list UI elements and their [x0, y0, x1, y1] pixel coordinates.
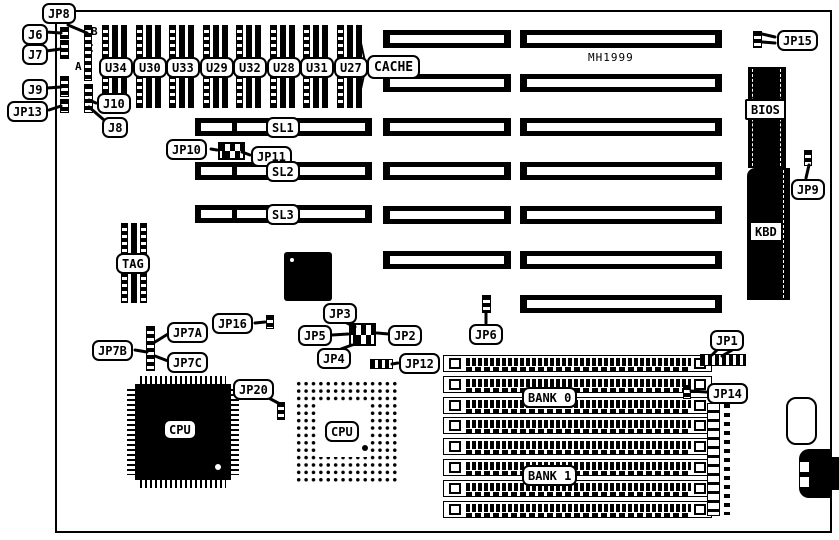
callout-sl1: SL1 [266, 117, 300, 138]
callout-jp2: JP2 [388, 325, 422, 346]
callout-jp1: JP1 [710, 330, 744, 351]
callout-jp6: JP6 [469, 324, 503, 345]
callout-jp12: JP12 [399, 353, 440, 374]
callout-jp7c: JP7C [167, 352, 208, 373]
callout-sl3: SL3 [266, 204, 300, 225]
callout-jp14: JP14 [707, 383, 748, 404]
callout-jp3: JP3 [323, 303, 357, 324]
callout-jp4: JP4 [317, 348, 351, 369]
callout-jp5: JP5 [298, 325, 332, 346]
motherboard-diagram: JP8J6J7J9JP13J10J8U34U30U33U29U32U28U31U… [0, 0, 839, 540]
callout-tag: TAG [116, 253, 150, 274]
callout-u32: U32 [233, 57, 267, 78]
callout-jp16: JP16 [212, 313, 253, 334]
callout-j10: J10 [97, 93, 131, 114]
callout-jp13: JP13 [7, 101, 48, 122]
callout-u30: U30 [133, 57, 167, 78]
callout-jp9: JP9 [791, 179, 825, 200]
callout-u33: U33 [166, 57, 200, 78]
callout-j7: J7 [22, 44, 48, 65]
callout-u28: U28 [267, 57, 301, 78]
callout-cache: CACHE [367, 55, 420, 79]
callout-j9: J9 [22, 79, 48, 100]
callout-jp20: JP20 [233, 379, 274, 400]
callout-u29: U29 [200, 57, 234, 78]
callout-jp7b: JP7B [92, 340, 133, 361]
callout-sl2: SL2 [266, 161, 300, 182]
callout-jp10: JP10 [166, 139, 207, 160]
callout-bank1: BANK 1 [522, 465, 577, 486]
callout-kbd: KBD [749, 221, 783, 242]
callout-jp7a: JP7A [167, 322, 208, 343]
callout-jp15: JP15 [777, 30, 818, 51]
callout-u27: U27 [334, 57, 368, 78]
callout-bank0: BANK 0 [522, 387, 577, 408]
callout-u34: U34 [99, 57, 133, 78]
callout-jp8: JP8 [42, 3, 76, 24]
callout-cpu-pga-label: CPU [325, 421, 359, 442]
callout-j8: J8 [102, 117, 128, 138]
callout-j6: J6 [22, 24, 48, 45]
callout-cpu-qfp-label: CPU [163, 419, 197, 440]
callout-u31: U31 [300, 57, 334, 78]
callout-bios: BIOS [745, 99, 786, 120]
